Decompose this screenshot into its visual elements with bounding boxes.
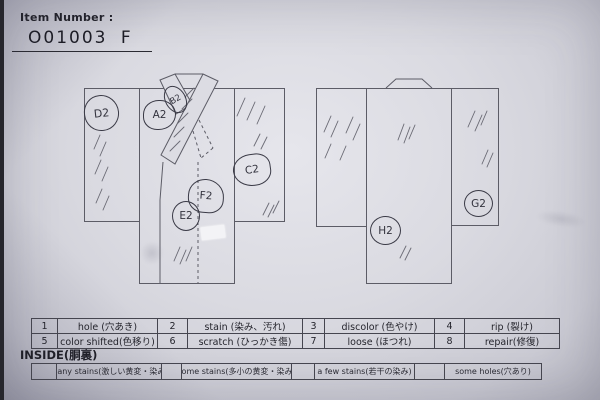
inside-check-cell	[415, 364, 445, 380]
legend-cell: 4	[435, 319, 465, 334]
inside-section-label: INSIDE(胴裏)	[20, 347, 97, 363]
back-collar-tab	[386, 79, 432, 88]
area-label-g2: G2	[464, 190, 493, 217]
legend-cell: 3	[303, 319, 325, 334]
inside-option-cell: many stains(激しい黄変・染み)	[57, 364, 162, 380]
kimono-back-outline	[317, 79, 499, 284]
front-overlap-line	[160, 162, 163, 283]
inside-check-cell	[162, 364, 182, 380]
legend-cell: stain (染み、汚れ)	[188, 319, 303, 334]
inside-option-cell: a few stains(若干の染み)	[315, 364, 415, 380]
legend-cell: repair(修復)	[465, 334, 560, 349]
pencil-smudge	[140, 242, 164, 264]
legend-cell: loose (ほつれ)	[325, 334, 435, 349]
inside-check-cell	[292, 364, 315, 380]
legend-cell: 6	[158, 334, 188, 349]
legend-cell: discolor (色やけ)	[325, 319, 435, 334]
legend-cell: 8	[435, 334, 465, 349]
inside-check-cell	[32, 364, 57, 380]
inside-lining-table: many stains(激しい黄変・染み) some stains(多小の黄変・…	[31, 363, 542, 380]
legend-cell: 7	[303, 334, 325, 349]
area-label-h2: H2	[370, 216, 401, 245]
inside-option-cell: some holes(穴あり)	[445, 364, 542, 380]
condition-legend-table: 1 hole (穴あき) 2 stain (染み、汚れ) 3 discolor …	[31, 318, 560, 349]
photographed-inspection-sheet: Item Number : O01003 F	[4, 0, 600, 400]
legend-cell: 1	[32, 319, 58, 334]
inside-option-cell: some stains(多小の黄変・染み)	[182, 364, 292, 380]
legend-cell: scratch (ひっかき傷)	[188, 334, 303, 349]
legend-cell: hole (穴あき)	[58, 319, 158, 334]
legend-cell: 2	[158, 319, 188, 334]
legend-cell: rip (裂け)	[465, 319, 560, 334]
